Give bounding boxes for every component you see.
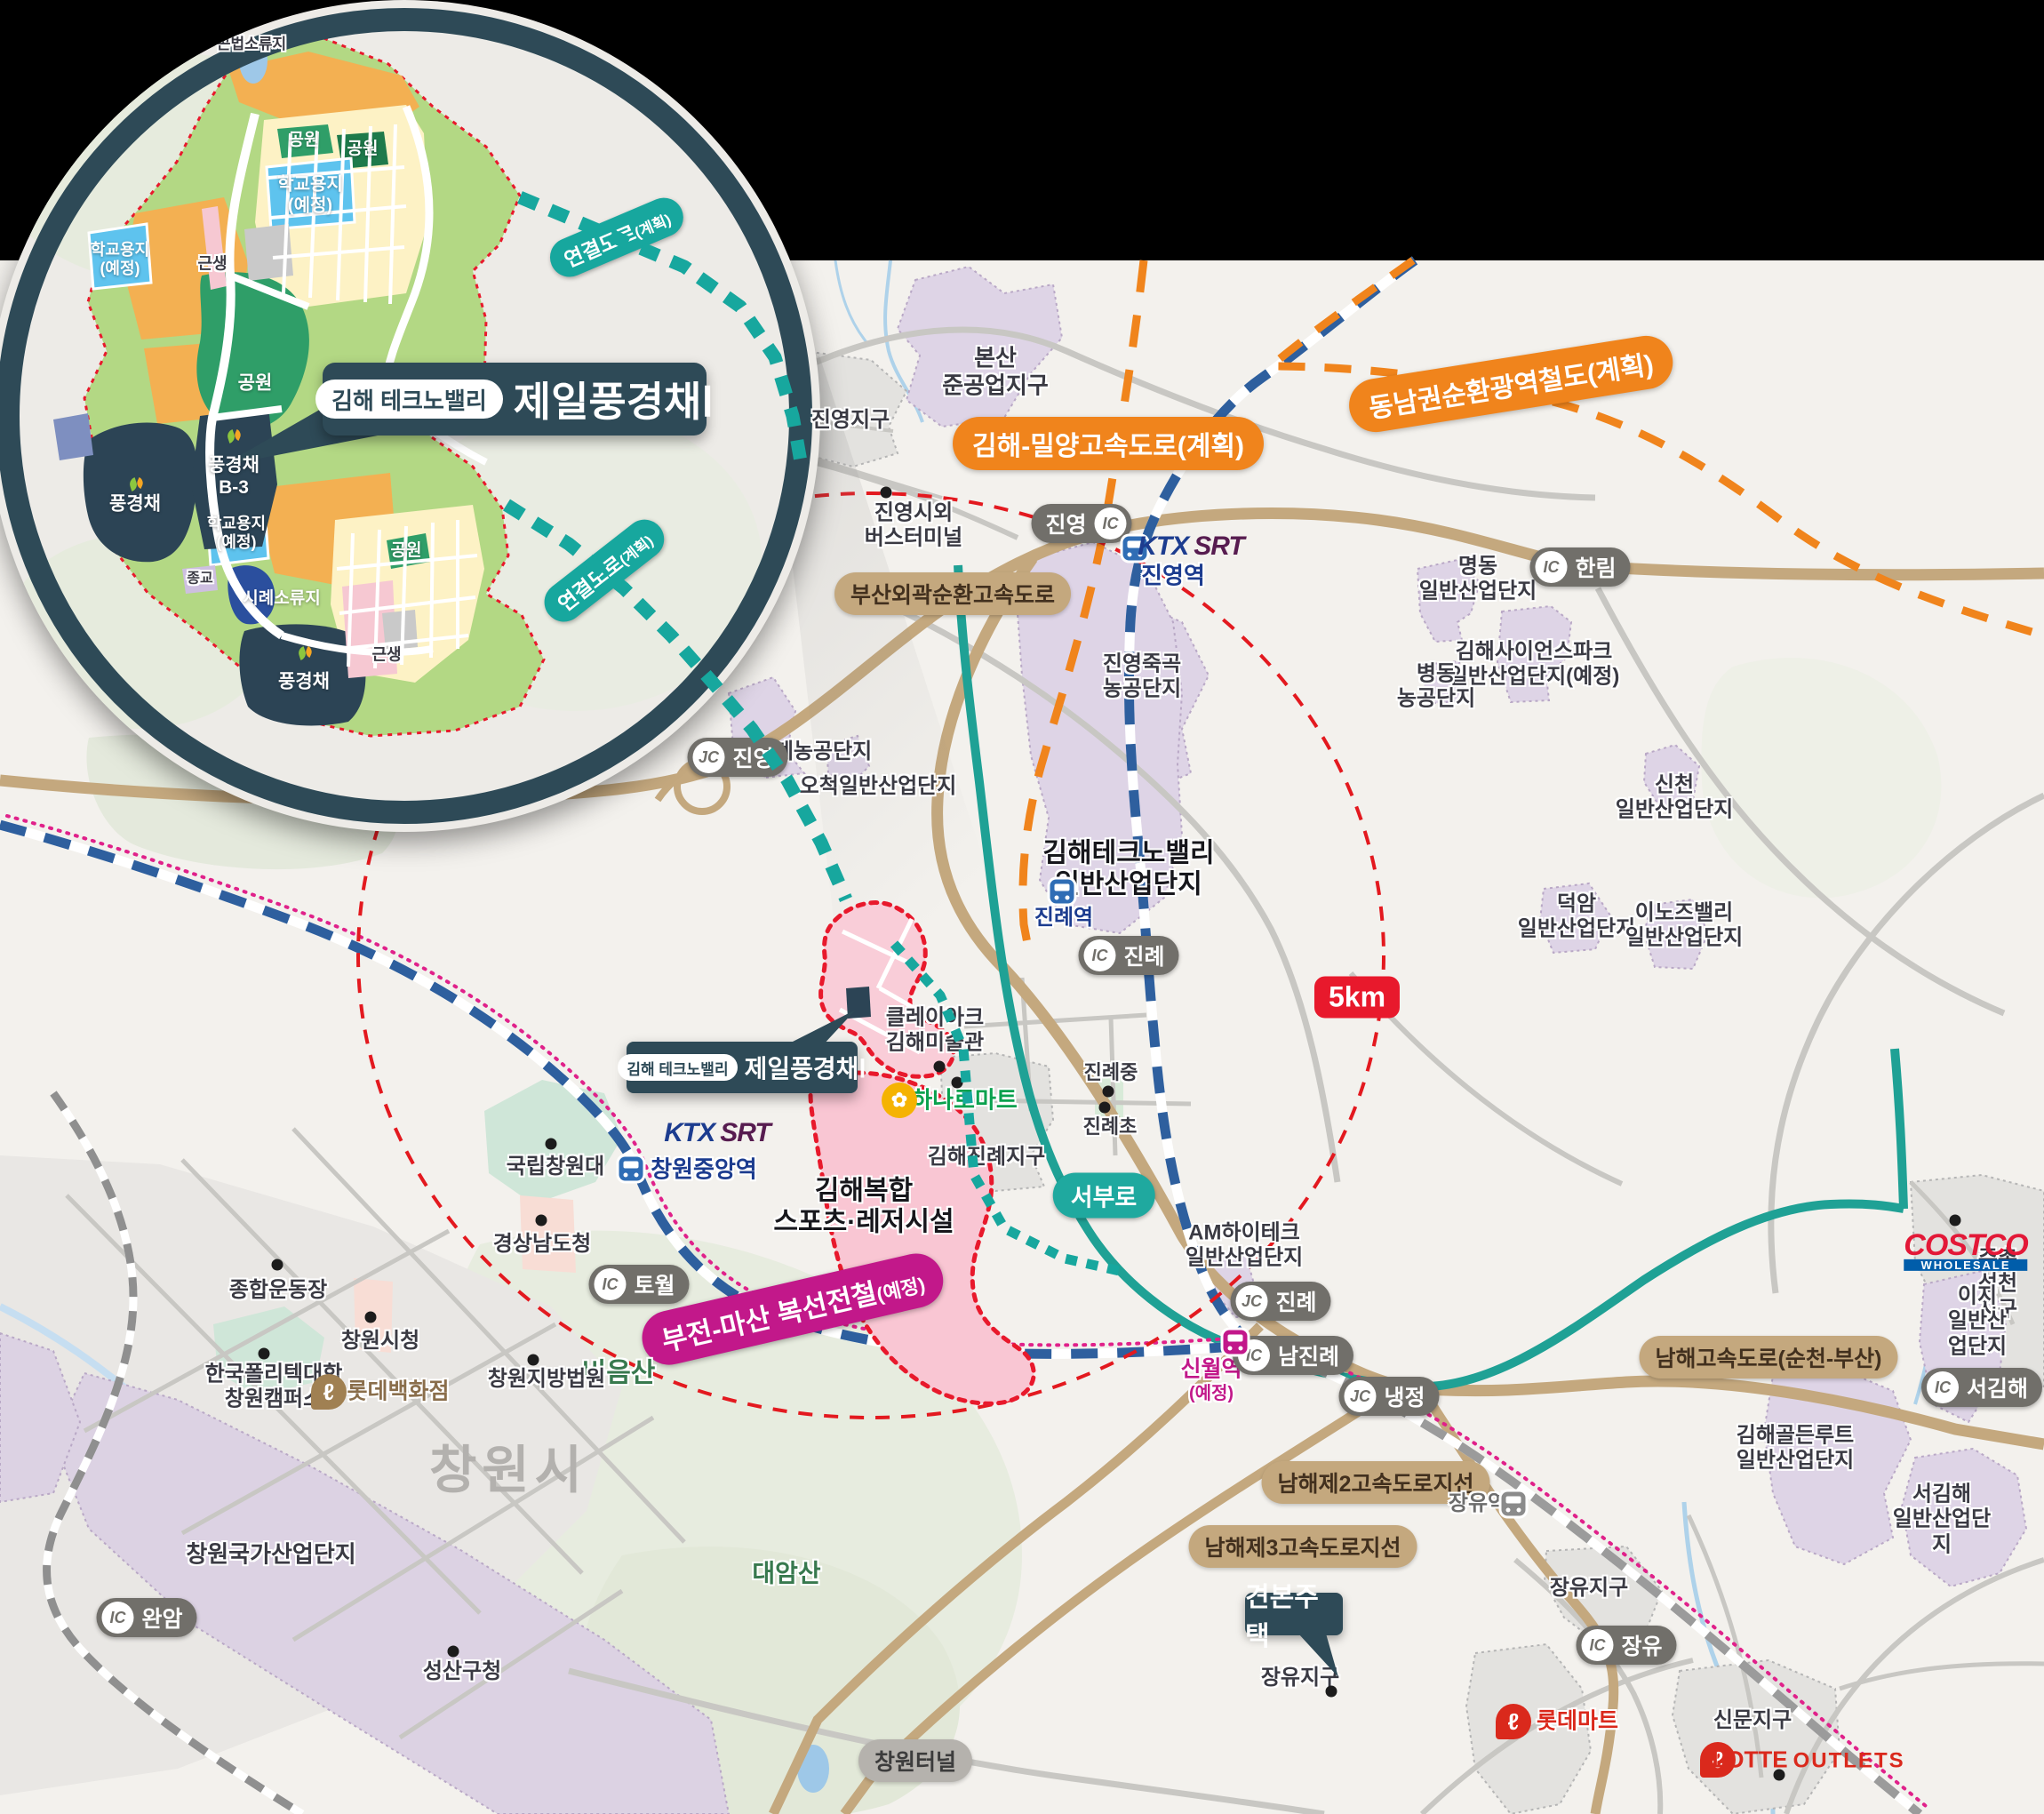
inset-label-park-3: 공원: [238, 373, 273, 396]
sprout-icon: [292, 645, 315, 659]
inset-label-pond-top: 곤법소류지: [217, 36, 286, 53]
inset-label-religion: 종교: [187, 571, 212, 588]
inset-callout-badge: 김해 테크노밸리: [315, 380, 503, 419]
location-map: 곤법소류지 공원 공원 공원 공원 학교용지 (예정) 학교용지 (예정) 학교…: [0, 0, 2044, 1814]
inset-label-park-4: 공원: [391, 541, 422, 561]
inset-label-geunsaeng-1: 근생: [197, 254, 227, 273]
inset-label-park-1: 공원: [289, 131, 320, 150]
inset-label-park-2: 공원: [347, 140, 379, 159]
inset-label-pgc-2: 풍경채: [278, 672, 330, 694]
inset-label-pgc-1: 풍경채: [109, 494, 161, 516]
site-plan-inset: 곤법소류지 공원 공원 공원 공원 학교용지 (예정) 학교용지 (예정) 학교…: [0, 0, 820, 832]
inset-label-school-2: 학교용지 (예정): [91, 241, 149, 278]
inset-label-school-1: 학교용지 (예정): [277, 174, 343, 216]
inset-callout: 김해 테크노밸리 제일풍경채Ⅰ: [323, 363, 707, 436]
inset-label-geunsaeng-2: 근생: [371, 645, 401, 664]
inset-callout-title: 제일풍경채Ⅰ: [514, 370, 714, 428]
inset-label-school-3: 학교용지 (예정): [207, 515, 266, 552]
inset-label-pond-mid: 시례소류지: [243, 589, 320, 609]
inset-label-pgc-b3: 풍경채 B-3: [208, 455, 259, 499]
sprout-icon: [124, 476, 147, 491]
sprout-icon: [221, 428, 244, 443]
